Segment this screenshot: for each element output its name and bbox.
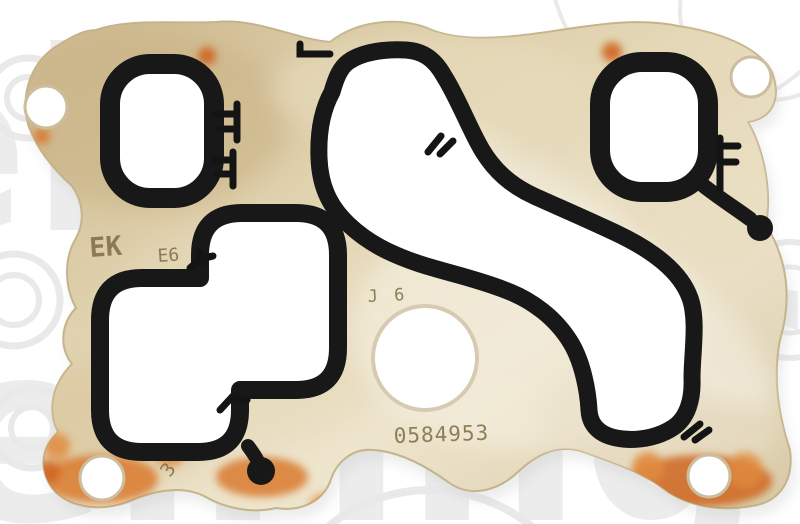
port-opening-top-right — [600, 62, 708, 192]
bolt-hole-bottom-left — [80, 456, 124, 500]
gasket-photo-canvas: elring elring elring — [0, 0, 800, 524]
port-opening-top-left — [110, 64, 214, 198]
stamp-mold-code-center: J 6 — [367, 285, 408, 307]
gasket-product-photo: elring elring elring — [0, 0, 800, 524]
bolt-hole-top-left — [25, 86, 67, 128]
stamp-mold-code-left: E6 — [157, 245, 180, 267]
center-bore-hole — [373, 306, 477, 410]
bead-end-blob-right — [747, 215, 773, 241]
bead-end-blob-bottom — [247, 457, 275, 485]
bolt-hole-bottom-right — [688, 455, 730, 497]
stamp-manufacturer-code: EK — [88, 231, 123, 264]
stamp-part-number: 0584953 — [393, 421, 489, 448]
bolt-hole-top-right — [731, 57, 771, 97]
